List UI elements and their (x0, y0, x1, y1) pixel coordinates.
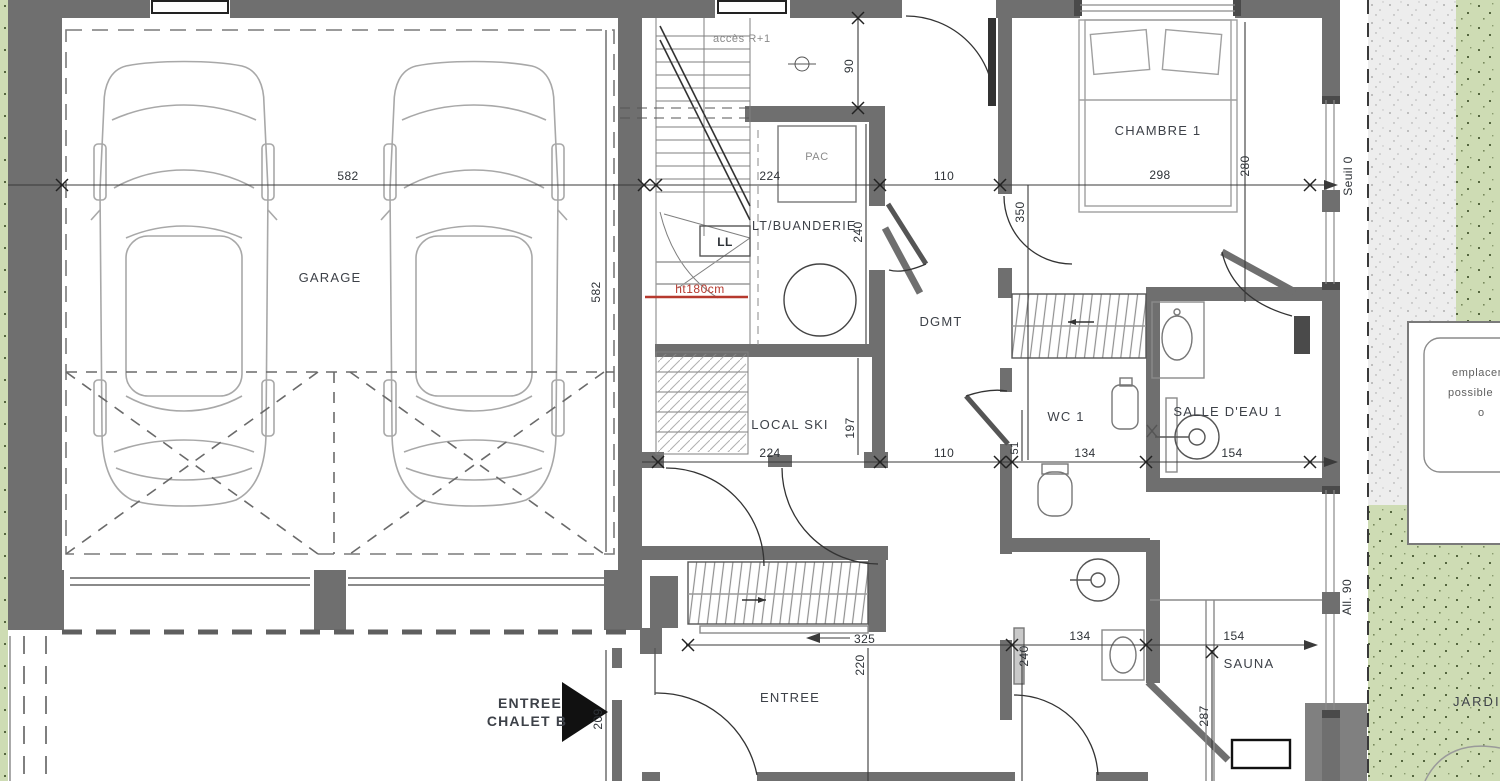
label-sauna: SAUNA (1224, 656, 1275, 671)
floor-plan: GARAGE accès R+1 PAC LL LT/BUANDERIE ht1… (0, 0, 1500, 781)
parking-cross-marks (66, 372, 614, 554)
bath2-shower (1070, 559, 1119, 601)
dim-chambre-v: 280 (1238, 155, 1252, 176)
label-seuil: Seuil 0 (1341, 156, 1355, 196)
fixtures (656, 20, 1322, 781)
label-pac: PAC (805, 151, 829, 163)
dim-sauna-v: 287 (1197, 705, 1211, 726)
label-entree-chalet-2: CHALET B (487, 713, 567, 729)
garage-window (152, 1, 228, 13)
emplacement-box (1408, 322, 1500, 544)
garage-area (62, 30, 640, 632)
dimension-labels: 582 582 90 224 240 110 298 280 350 224 1… (337, 59, 1252, 730)
label-buanderie: LT/BUANDERIE (752, 219, 856, 233)
ski-racks (656, 352, 748, 454)
dim-door90: 90 (842, 59, 856, 73)
wc-basin (1112, 378, 1138, 429)
label-acces: accès R+1 (713, 33, 771, 45)
dim-buanderie-v: 240 (851, 221, 865, 242)
floor-plan-svg: GARAGE accès R+1 PAC LL LT/BUANDERIE ht1… (0, 0, 1500, 781)
dim-wall350: 350 (1013, 201, 1027, 222)
dim-ward325: 325 (854, 632, 875, 646)
label-garage: GARAGE (299, 270, 362, 285)
door-arc-entree (655, 693, 757, 775)
label-wc1: WC 1 (1047, 409, 1084, 424)
sauna-room (1150, 600, 1322, 781)
door-leaf-top-entry (988, 18, 996, 106)
dim-ent209: 209 (591, 708, 605, 729)
label-chambre1: CHAMBRE 1 (1115, 123, 1202, 138)
dim-sde-w: 154 (1221, 446, 1242, 460)
dim-seg51: 51 (1009, 441, 1021, 454)
door-arc-top-entry (906, 16, 994, 104)
dim-wc-w: 134 (1074, 446, 1095, 460)
dim-top110: 110 (934, 169, 954, 183)
label-salle-deau1: SALLE D'EAU 1 (1173, 404, 1282, 419)
closet-dgmt (1012, 294, 1146, 358)
toilet (1038, 464, 1072, 516)
label-emplacement-2: possible (1448, 387, 1493, 399)
wardrobe-entree (688, 562, 868, 633)
label-emplacement-3: o (1478, 407, 1485, 419)
dim-entree-v: 220 (853, 654, 867, 675)
dim-garage-w: 582 (337, 169, 358, 183)
dim-325-arrow (806, 633, 850, 643)
bed (1079, 20, 1237, 212)
label-ll: LL (717, 235, 732, 249)
door-leaf-dgmt (888, 204, 926, 264)
dim-garage-v: 582 (589, 281, 603, 302)
dim-bath-w: 134 (1069, 629, 1090, 643)
stair-window (718, 1, 786, 13)
laundry-drum (784, 264, 856, 336)
pac-unit (778, 126, 856, 202)
bath2-vanity (1102, 630, 1144, 680)
dim-mid110: 110 (934, 446, 954, 460)
door-leaf-wc (966, 396, 1008, 444)
label-all90: All. 90 (1340, 579, 1354, 615)
dim-sauna-w: 154 (1223, 629, 1244, 643)
sauna-heater (1232, 740, 1290, 768)
chambre-window (1080, 5, 1235, 11)
dim-ski-w: 224 (759, 446, 780, 460)
door-arc-bath2 (1014, 695, 1098, 775)
dim-buanderie-w: 224 (759, 169, 780, 183)
label-ht180: ht180cm (675, 282, 725, 296)
label-emplacement-1: emplacement (1452, 367, 1500, 379)
dim-ski-v: 197 (843, 417, 857, 438)
labels: GARAGE accès R+1 PAC LL LT/BUANDERIE ht1… (299, 33, 1500, 729)
label-jardin: JARDIN (1453, 694, 1500, 709)
dim-chambre-w: 298 (1149, 168, 1170, 182)
dim-bath-v: 240 (1017, 645, 1031, 666)
label-local-ski: LOCAL SKI (751, 417, 829, 432)
label-entree-chalet-1: ENTREE (498, 695, 562, 711)
label-entree: ENTREE (760, 690, 820, 705)
label-dgmt: DGMT (919, 314, 962, 329)
